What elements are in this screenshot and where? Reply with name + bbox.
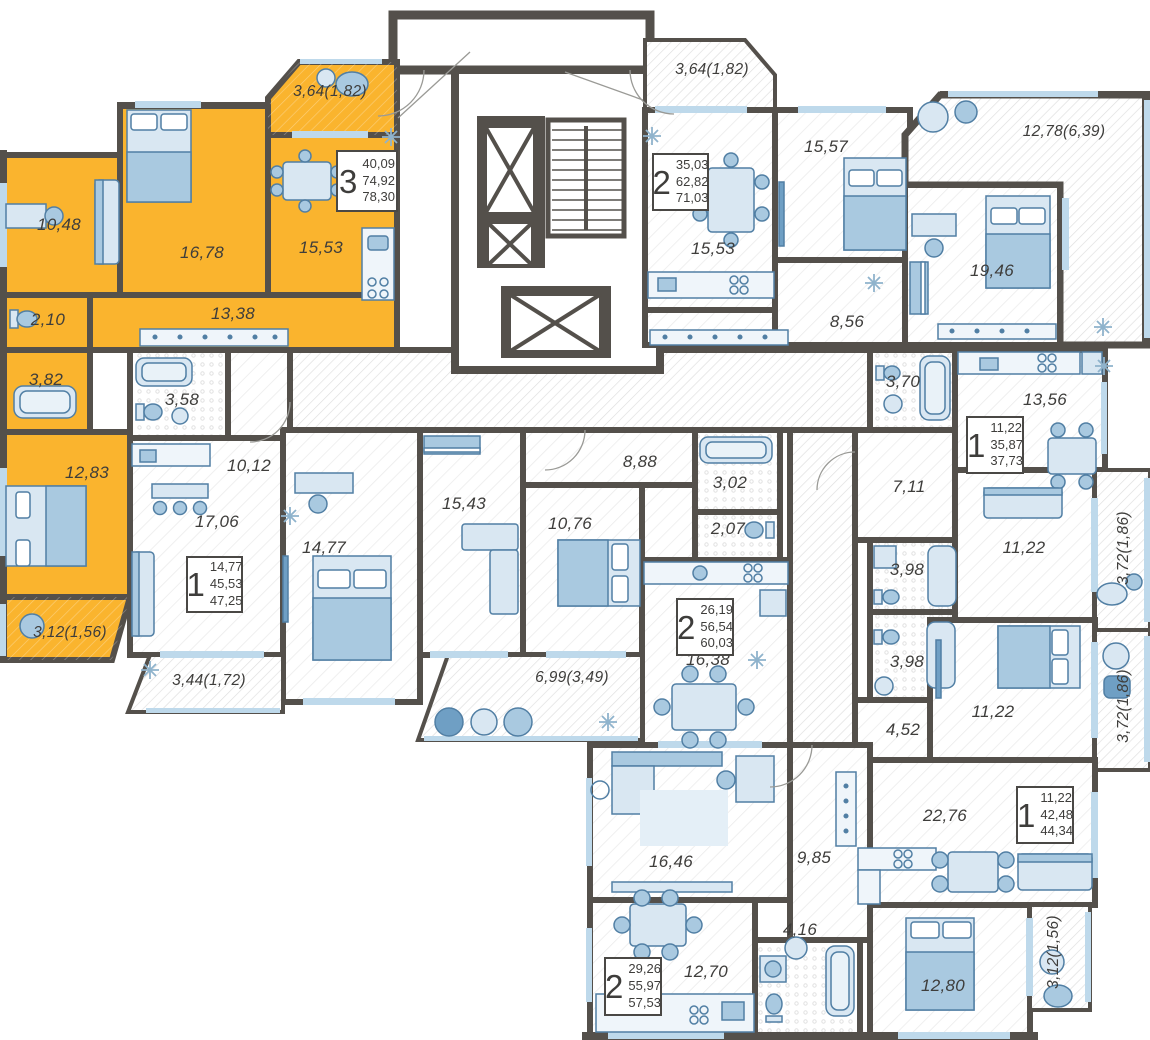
total-area-value: 44,34 bbox=[1040, 823, 1073, 840]
room-area-label: 17,06 bbox=[195, 512, 239, 532]
living-area-value: 35,03 bbox=[676, 157, 709, 174]
floor-area-value: 56,54 bbox=[700, 619, 733, 636]
total-area-value: 57,53 bbox=[628, 995, 661, 1012]
floor-area-value: 55,97 bbox=[628, 978, 661, 995]
balcony-area-label: 3,64(1,82) bbox=[293, 83, 367, 101]
room-area-label: 2,10 bbox=[31, 310, 65, 330]
room-area-label: 13,38 bbox=[211, 304, 255, 324]
pouf-icon bbox=[504, 708, 532, 736]
room-area-label: 10,12 bbox=[227, 456, 271, 476]
piano-icon bbox=[424, 436, 480, 454]
toilet-icon bbox=[766, 994, 782, 1022]
room-area-label: 11,22 bbox=[1003, 538, 1046, 558]
balcony-area-label: 6,99(3,49) bbox=[535, 669, 609, 687]
floor-area-value: 35,87 bbox=[990, 437, 1023, 454]
bathtub-icon bbox=[136, 358, 192, 386]
bathtub-icon bbox=[700, 437, 772, 463]
living-area-value: 14,77 bbox=[210, 559, 243, 576]
washer-icon bbox=[760, 956, 786, 982]
kitchen-counter-icon bbox=[362, 228, 394, 300]
apartment-rooms-count: 2 bbox=[605, 970, 623, 1003]
bed-icon bbox=[127, 110, 191, 202]
room-area-label: 3,58 bbox=[165, 390, 199, 410]
apartment-rooms-count: 2 bbox=[677, 611, 695, 644]
apartment-rooms-count: 1 bbox=[1017, 799, 1035, 832]
total-area-value: 71,03 bbox=[676, 190, 709, 207]
wardrobe-icon bbox=[650, 330, 788, 345]
total-area-value: 78,30 bbox=[362, 189, 395, 206]
living-area-value: 11,22 bbox=[990, 420, 1023, 437]
total-area-value: 37,73 bbox=[990, 453, 1023, 470]
total-area-value: 47,25 bbox=[210, 593, 243, 610]
bed-icon bbox=[998, 626, 1080, 688]
room-area-label: 8,56 bbox=[830, 312, 864, 332]
wardrobe-icon bbox=[140, 329, 288, 346]
room-area-label: 3,98 bbox=[890, 560, 924, 580]
room-area-label: 15,57 bbox=[804, 137, 848, 157]
living-area-value: 29,26 bbox=[628, 961, 661, 978]
balcony-area-label: 3,64(1,82) bbox=[675, 61, 749, 79]
apartment-stamp: 3 40,09 74,92 78,30 bbox=[336, 150, 398, 212]
bed-icon bbox=[558, 540, 640, 606]
balcony-area-label: 3,12(1,56) bbox=[33, 624, 107, 642]
bathtub-icon bbox=[826, 946, 854, 1016]
wardrobe-icon bbox=[836, 772, 856, 846]
room-area-label: 8,88 bbox=[623, 452, 657, 472]
hallway bbox=[523, 430, 695, 485]
room-area-label: 3,82 bbox=[29, 370, 63, 390]
living-area-value: 40,09 bbox=[362, 156, 395, 173]
sofa-icon bbox=[95, 180, 119, 264]
staircase-icon bbox=[548, 120, 624, 236]
kitchen-counter-icon bbox=[648, 272, 774, 298]
apartment-stamp: 2 26,19 56,54 60,03 bbox=[676, 598, 734, 656]
floor-area-value: 42,48 bbox=[1040, 807, 1073, 824]
sofa-icon bbox=[132, 552, 154, 636]
bed-icon bbox=[6, 486, 86, 566]
bed-icon bbox=[844, 158, 906, 250]
pouf-icon bbox=[918, 102, 948, 132]
tv-icon bbox=[936, 640, 941, 698]
room-area-label: 16,78 bbox=[180, 243, 224, 263]
washbasin-icon bbox=[785, 937, 807, 959]
room-area-label: 3,02 bbox=[713, 473, 747, 493]
kitchen-counter-icon bbox=[958, 352, 1102, 374]
balcony-area-label: 3,72(1,86) bbox=[1115, 669, 1133, 743]
room-area-label: 15,53 bbox=[299, 238, 343, 258]
piano-icon bbox=[910, 262, 928, 314]
apartment-stamp: 2 29,26 55,97 57,53 bbox=[604, 957, 662, 1016]
hallway bbox=[642, 485, 695, 560]
apartment-rooms-count: 2 bbox=[653, 166, 671, 199]
toilet-icon bbox=[745, 522, 774, 538]
apartment-stamp: 2 35,03 62,82 71,03 bbox=[652, 153, 709, 211]
room-area-label: 13,56 bbox=[1023, 390, 1067, 410]
room-area-label: 4,52 bbox=[886, 720, 920, 740]
bed-icon bbox=[313, 556, 391, 660]
room-area-label: 19,46 bbox=[970, 261, 1014, 281]
room-area-label: 16,46 bbox=[649, 852, 693, 872]
apartment-rooms-count: 3 bbox=[339, 165, 357, 198]
room-area-label: 14,77 bbox=[302, 538, 346, 558]
total-area-value: 60,03 bbox=[700, 635, 733, 652]
floor-area-value: 62,82 bbox=[676, 174, 709, 191]
bed-icon bbox=[906, 918, 974, 1010]
living-area-value: 11,22 bbox=[1040, 790, 1073, 807]
floor-area-value: 45,53 bbox=[210, 576, 243, 593]
room-area-label: 12,83 bbox=[65, 463, 109, 483]
tv-icon bbox=[779, 182, 784, 246]
pouf-icon bbox=[471, 709, 497, 735]
wardrobe-icon bbox=[938, 324, 1056, 339]
hallway bbox=[775, 260, 910, 345]
sofa-icon bbox=[1018, 854, 1092, 890]
room-area-label: 12,80 bbox=[921, 976, 965, 996]
pouf-icon bbox=[955, 101, 977, 123]
room-area-label: 9,85 bbox=[797, 848, 831, 868]
apartment-stamp: 1 11,22 42,48 44,34 bbox=[1016, 786, 1074, 844]
room-area-label: 2,07 bbox=[711, 519, 745, 539]
room-area-label: 12,70 bbox=[684, 962, 728, 982]
balcony-area-label: 3,44(1,72) bbox=[172, 672, 246, 690]
room-area-label: 15,43 bbox=[442, 494, 486, 514]
room-area-label: 4,16 bbox=[783, 920, 817, 940]
balcony-area-label: 12,78(6,39) bbox=[1023, 123, 1106, 141]
balcony-area-label: 3,12(1,56) bbox=[1045, 915, 1063, 989]
sofa-icon bbox=[984, 488, 1062, 518]
room-area-label: 10,48 bbox=[37, 215, 81, 235]
floor-plan: 10,48 16,78 15,53 13,38 2,10 3,82 12,83 … bbox=[0, 0, 1150, 1040]
room-area-label: 7,11 bbox=[892, 477, 925, 497]
tv-icon bbox=[283, 556, 288, 622]
corridor bbox=[790, 430, 855, 745]
pouf-icon bbox=[435, 708, 463, 736]
apartment-rooms-count: 1 bbox=[967, 429, 985, 462]
room-area-label: 3,70 bbox=[886, 372, 920, 392]
hallway bbox=[790, 745, 870, 940]
room-area-label: 10,76 bbox=[548, 514, 592, 534]
room-area-label: 11,22 bbox=[972, 702, 1015, 722]
floor-area-value: 74,92 bbox=[362, 173, 395, 190]
room-area-label: 15,53 bbox=[691, 239, 735, 259]
apartment-stamp: 1 11,22 35,87 37,73 bbox=[966, 416, 1024, 474]
room-area-label: 22,76 bbox=[923, 806, 967, 826]
vestibule bbox=[393, 15, 650, 70]
balcony-area-label: 3,72(1,86) bbox=[1115, 511, 1133, 585]
bathtub-icon bbox=[14, 386, 76, 418]
room-area-label: 3,98 bbox=[890, 652, 924, 672]
apartment-rooms-count: 1 bbox=[187, 568, 205, 601]
living-area-value: 26,19 bbox=[700, 602, 733, 619]
apartment-stamp: 1 14,77 45,53 47,25 bbox=[186, 556, 243, 613]
